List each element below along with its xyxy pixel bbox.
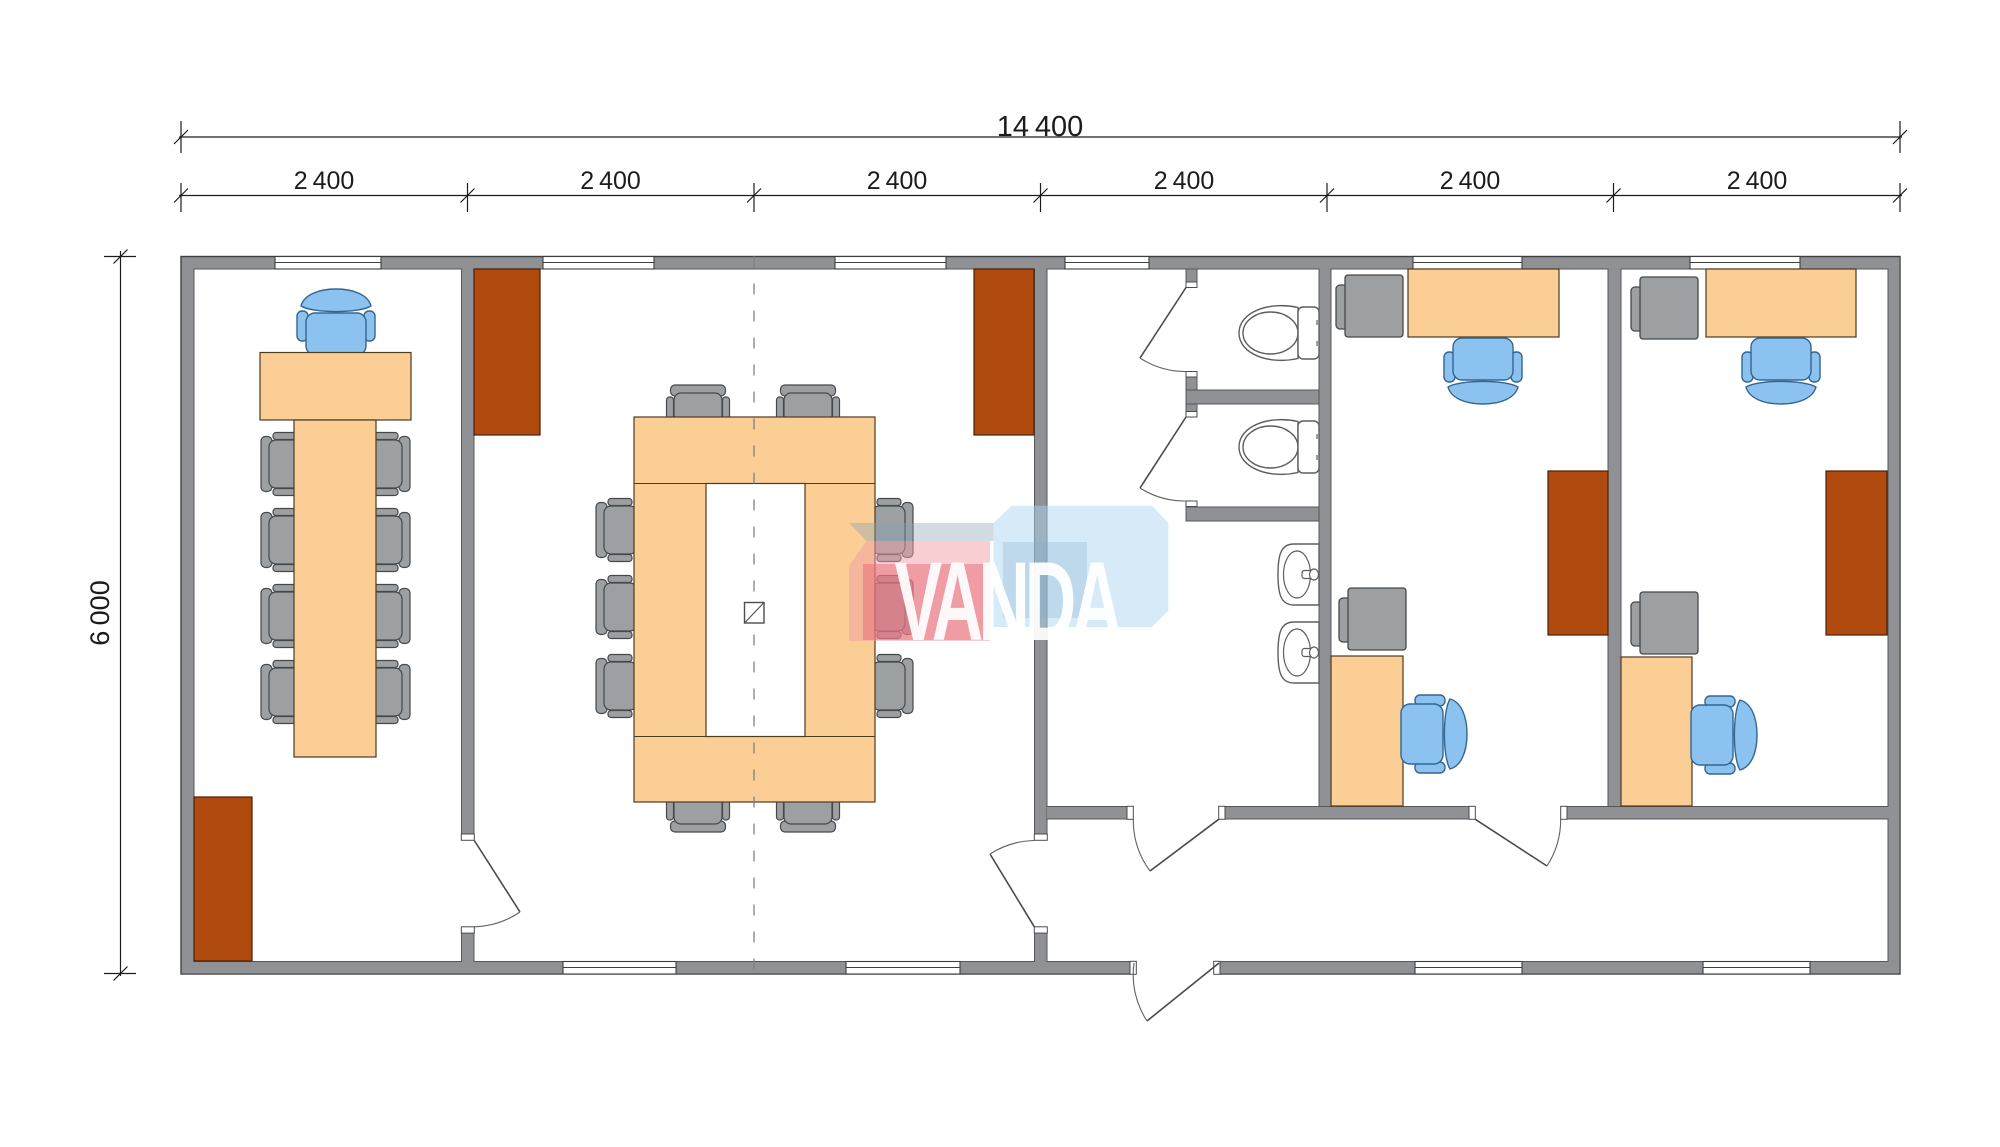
svg-text:2 400: 2 400 <box>294 167 355 195</box>
svg-text:14 400: 14 400 <box>997 111 1083 143</box>
svg-text:VANDA: VANDA <box>895 539 1122 664</box>
svg-text:6 000: 6 000 <box>85 580 115 645</box>
svg-text:2 400: 2 400 <box>580 167 641 195</box>
svg-text:2 400: 2 400 <box>1154 167 1215 195</box>
svg-text:2 400: 2 400 <box>1727 167 1788 195</box>
svg-text:2 400: 2 400 <box>867 167 928 195</box>
svg-text:2 400: 2 400 <box>1440 167 1501 195</box>
